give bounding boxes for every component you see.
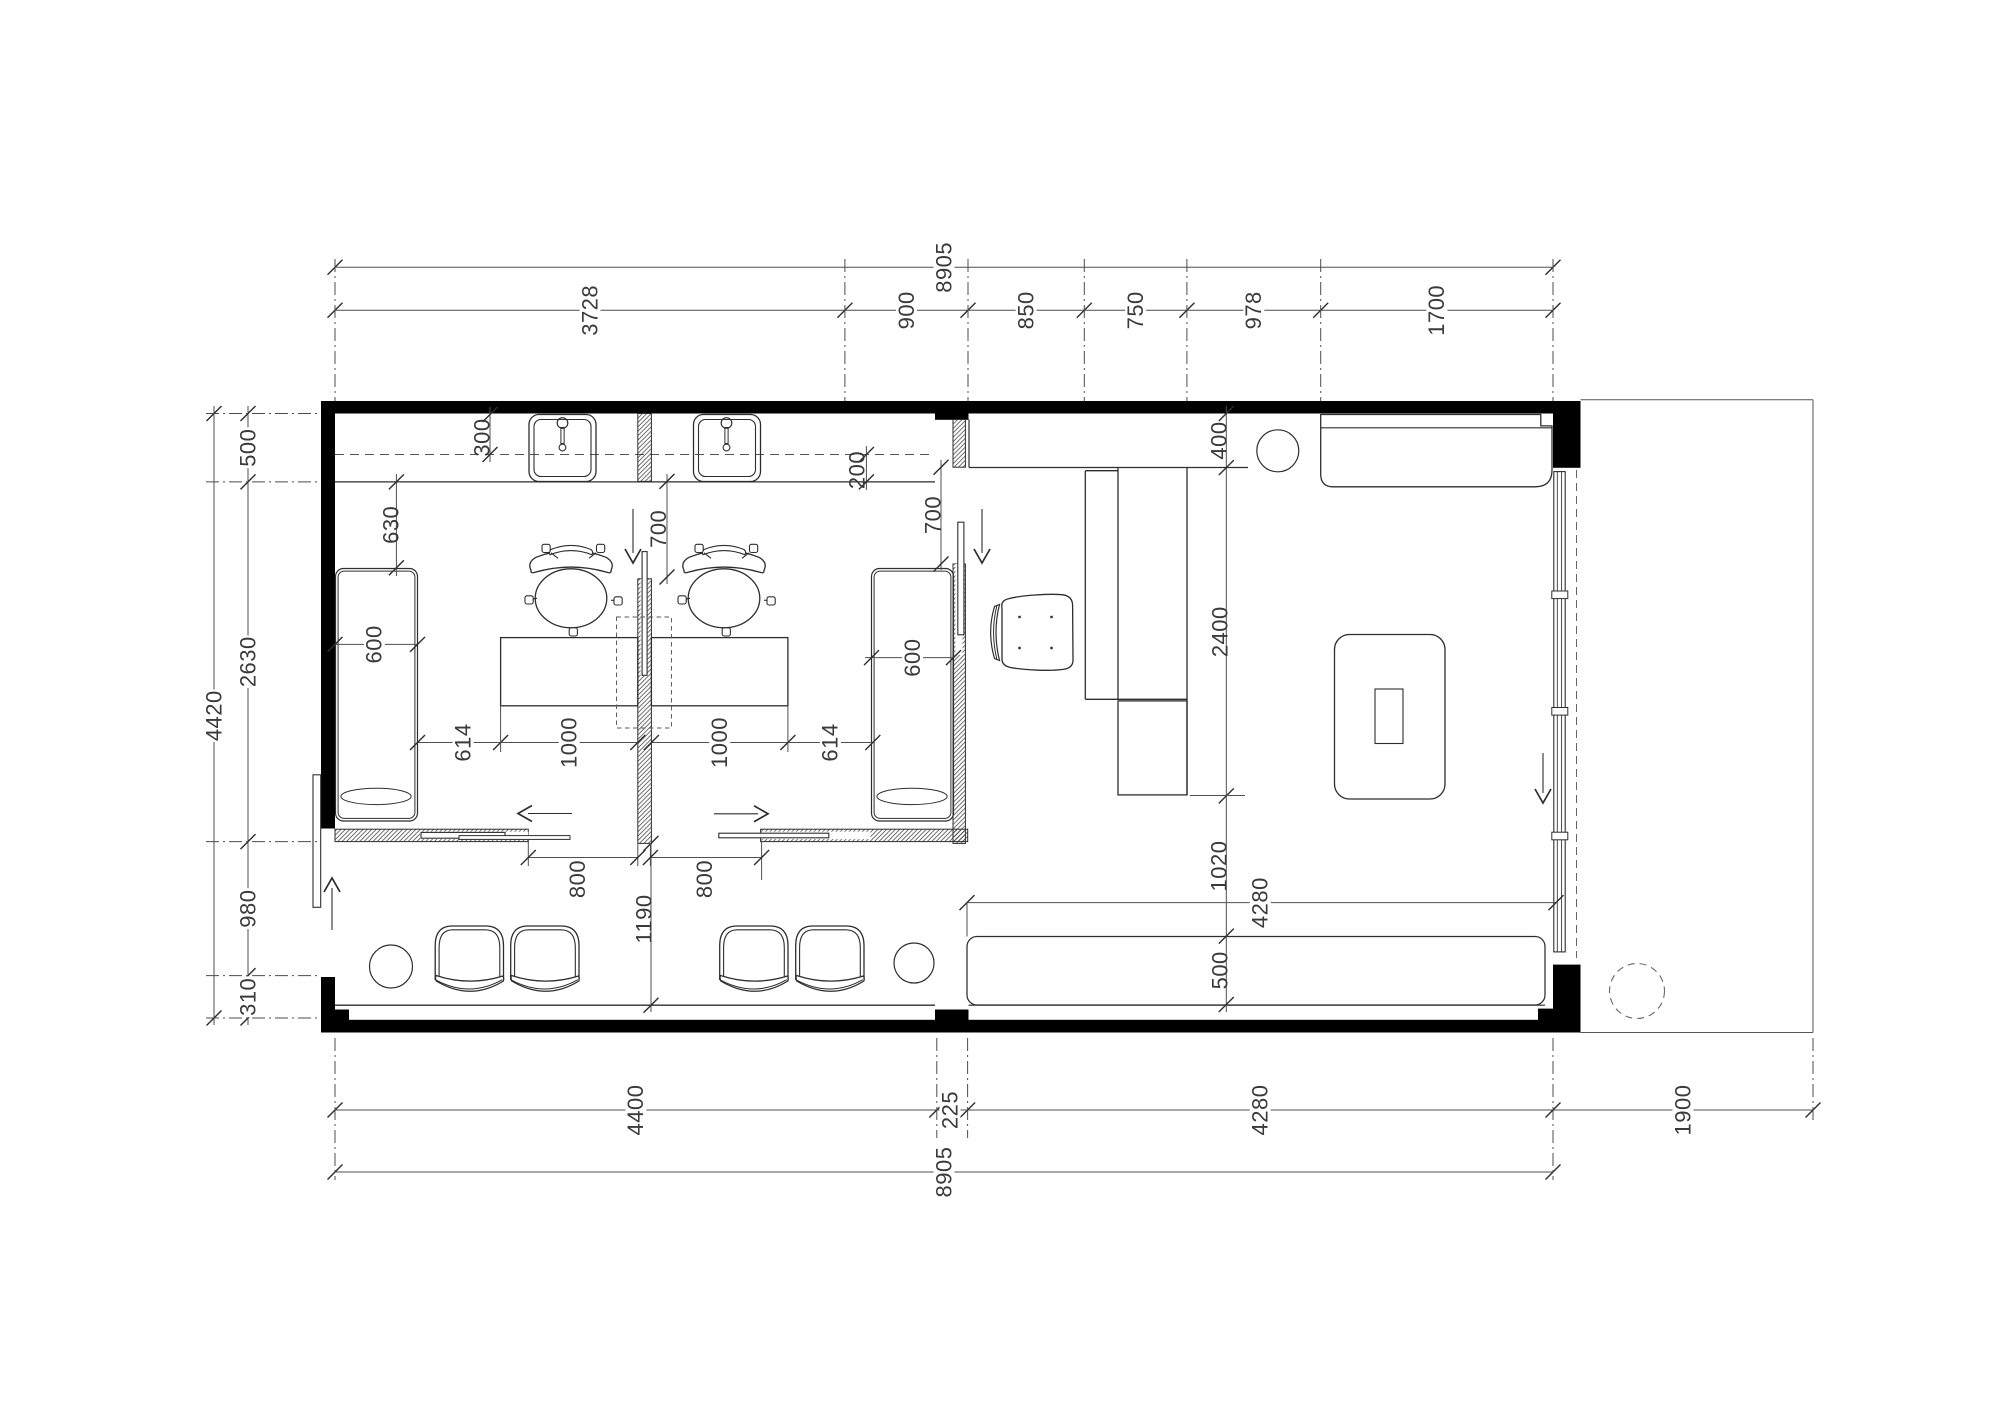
- svg-text:900: 900: [894, 291, 919, 329]
- svg-text:200: 200: [844, 451, 869, 489]
- svg-text:850: 850: [1014, 291, 1039, 329]
- svg-text:700: 700: [646, 510, 671, 548]
- svg-text:600: 600: [900, 638, 925, 676]
- svg-text:630: 630: [378, 506, 403, 544]
- svg-text:500: 500: [1207, 951, 1232, 989]
- svg-text:8905: 8905: [931, 1147, 956, 1198]
- svg-text:614: 614: [818, 723, 843, 761]
- svg-text:1000: 1000: [707, 717, 732, 768]
- svg-text:2630: 2630: [235, 636, 260, 687]
- svg-text:2400: 2400: [1207, 606, 1232, 657]
- svg-text:1700: 1700: [1424, 285, 1449, 336]
- svg-text:700: 700: [920, 496, 945, 534]
- svg-text:800: 800: [692, 860, 717, 898]
- svg-text:400: 400: [1206, 421, 1231, 459]
- svg-text:8905: 8905: [931, 242, 956, 293]
- svg-text:310: 310: [235, 978, 260, 1016]
- svg-text:4400: 4400: [623, 1085, 648, 1136]
- svg-text:800: 800: [565, 860, 590, 898]
- svg-text:4280: 4280: [1248, 877, 1273, 928]
- svg-text:4280: 4280: [1248, 1085, 1273, 1136]
- svg-text:1900: 1900: [1670, 1085, 1695, 1136]
- svg-text:300: 300: [469, 418, 494, 456]
- svg-text:978: 978: [1241, 291, 1266, 329]
- svg-text:600: 600: [362, 625, 387, 663]
- svg-text:3728: 3728: [577, 285, 602, 336]
- svg-text:750: 750: [1123, 291, 1148, 329]
- svg-text:1020: 1020: [1206, 841, 1231, 892]
- svg-text:980: 980: [235, 889, 260, 927]
- svg-text:1000: 1000: [557, 717, 582, 768]
- svg-text:1190: 1190: [631, 894, 656, 943]
- svg-text:225: 225: [937, 1091, 962, 1129]
- svg-text:500: 500: [235, 429, 260, 467]
- svg-text:4420: 4420: [201, 690, 226, 741]
- svg-text:614: 614: [450, 723, 475, 761]
